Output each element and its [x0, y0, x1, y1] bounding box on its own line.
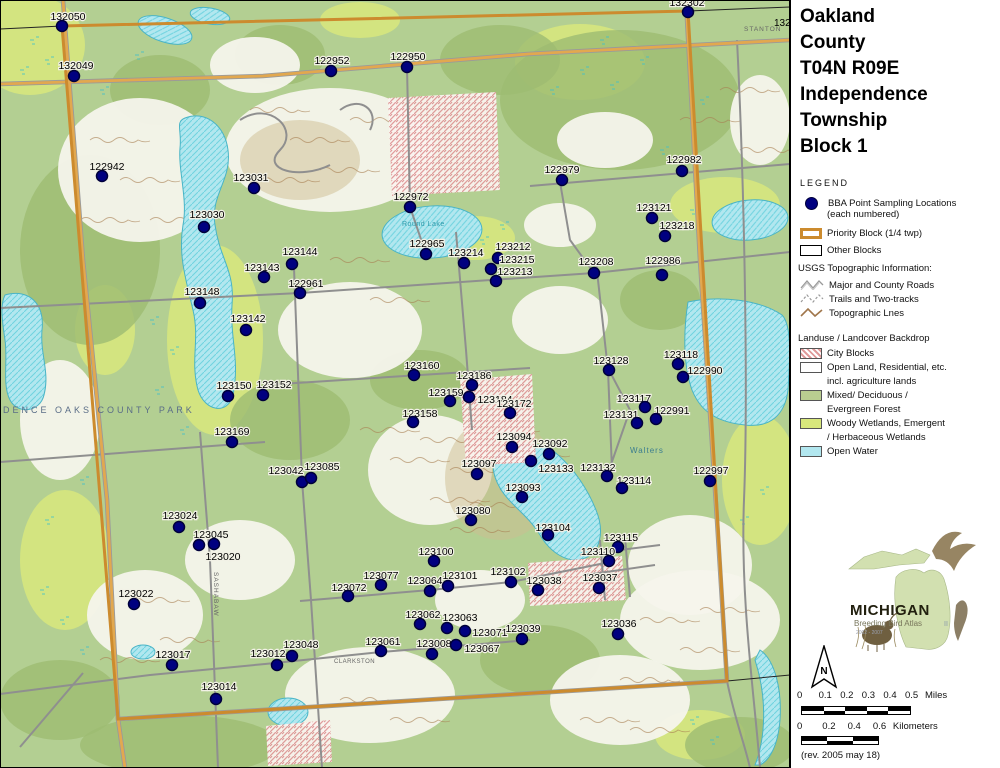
bba-point-123169	[227, 437, 238, 448]
bba-point-label: 123148	[184, 286, 219, 298]
priority-block-icon	[800, 228, 822, 239]
bba-point-122952	[326, 66, 337, 77]
bba-point-123064	[425, 586, 436, 597]
north-arrow-icon: N	[809, 645, 839, 691]
bba-point-label: 123024	[162, 510, 197, 522]
scalebar-tick: 0.5	[905, 690, 918, 701]
map-sheet: INDEPENDENCE OAKS COUNTY PARKWaltersRoun…	[0, 0, 1000, 768]
legend-item-trails: Trails and Two-tracks	[800, 292, 919, 307]
bba-point-122965	[421, 249, 432, 260]
scalebar-tick: 0.1	[819, 690, 832, 701]
bba-point-label: 123030	[189, 209, 224, 221]
svg-text:CLARKSTON: CLARKSTON	[334, 659, 375, 665]
bba-point-123213	[491, 276, 502, 287]
bba-point-123114	[617, 483, 628, 494]
bba-point-123067	[451, 640, 462, 651]
bba-point-123160	[409, 370, 420, 381]
bba-point-123039	[517, 634, 528, 645]
bba-point-123143	[259, 272, 270, 283]
legend-item-wetlands: Woody Wetlands, Emergent	[800, 418, 945, 429]
michigan-up-shape	[849, 549, 930, 569]
bba-point-122982	[677, 166, 688, 177]
bba-point-123038	[533, 585, 544, 596]
bba-point-122986	[657, 270, 668, 281]
bba-point-label: 123212	[495, 241, 530, 253]
scalebar-tick: 0.6	[873, 721, 886, 732]
map-area: INDEPENDENCE OAKS COUNTY PARKWaltersRoun…	[0, 0, 790, 768]
bba-point-123133	[526, 456, 537, 467]
bba-point-label: 123160	[404, 360, 439, 372]
scalebar-tick: 0.4	[883, 690, 896, 701]
bba-point-label: 123144	[282, 246, 317, 258]
legend-item-open-land: Open Land, Residential, etc.	[800, 362, 947, 373]
svg-text:Walters: Walters	[630, 446, 664, 455]
bba-point-123093	[517, 492, 528, 503]
scalebar-unit: Kilometers	[893, 721, 938, 732]
bba-point-132049	[69, 71, 80, 82]
bba-point-123085	[306, 473, 317, 484]
bba-point-123184	[464, 392, 475, 403]
bba-point-123071	[460, 626, 471, 637]
bba-point-label: 123172	[496, 398, 531, 410]
legend-item-open-land-line2: incl. agriculture lands	[827, 376, 916, 387]
bba-point-123048	[287, 651, 298, 662]
bba-point-123031	[249, 183, 260, 194]
bba-point-label: 123042	[268, 465, 303, 477]
scalebar-tick: 0	[797, 721, 802, 732]
legend-item-open-water: Open Water	[800, 446, 878, 457]
bba-point-123037	[594, 583, 605, 594]
svg-text:2002 - 2007: 2002 - 2007	[856, 630, 883, 636]
bba-point-icon	[805, 197, 818, 210]
bba-point-label: 122986	[645, 255, 680, 267]
bba-point-123062	[415, 619, 426, 630]
map-title: Oakland County T04N R09E Independence To…	[800, 4, 928, 160]
landuse-heading: Landuse / Landcover Backdrop	[798, 333, 930, 344]
scalebar-tick: 0.2	[822, 721, 835, 732]
bba-point-123218	[660, 231, 671, 242]
bba-point-123036	[613, 629, 624, 640]
bba-point-122997	[705, 476, 716, 487]
bba-point-123022	[129, 599, 140, 610]
bba-point-label: 122942	[89, 161, 124, 173]
bba-point-122991	[651, 414, 662, 425]
bba-point-123148	[195, 298, 206, 309]
bba-point-123214	[459, 258, 470, 269]
bba-point-label: 123064	[407, 575, 442, 587]
bba-point-label: 123012	[250, 648, 285, 660]
svg-text:SASHABAW: SASHABAW	[212, 572, 219, 617]
legend-item-bba-points-line2: (each numbered)	[827, 209, 899, 220]
title-line: Independence	[800, 82, 928, 108]
open-water-icon	[800, 446, 822, 457]
bba-point-label: 123071	[472, 627, 507, 639]
bba-point-label: 123133	[538, 463, 573, 475]
bba-point-123100	[429, 556, 440, 567]
bba-point-label: 123020	[205, 551, 240, 563]
bba-point-123097	[472, 469, 483, 480]
topo-map: INDEPENDENCE OAKS COUNTY PARKWaltersRoun…	[0, 0, 790, 768]
bba-point-label: 123048	[283, 639, 318, 651]
bba-point-label: 123150	[216, 380, 251, 392]
bba-point-123104	[543, 530, 554, 541]
scalebar	[801, 736, 879, 745]
bba-point-123215	[486, 264, 497, 275]
bba-point-122961	[295, 288, 306, 299]
bba-point-123128	[604, 365, 615, 376]
bba-point-label: 123085	[304, 461, 339, 473]
trails-zigzag-icon	[800, 292, 824, 307]
scalebar-tick: 0	[797, 690, 802, 701]
bba-point-123144	[287, 259, 298, 270]
bba-point-123186	[467, 380, 478, 391]
bba-point-123008	[427, 649, 438, 660]
bba-point-label: 123213	[497, 266, 532, 278]
bba-point-123142	[241, 325, 252, 336]
scalebar-tick: 0.4	[848, 721, 861, 732]
bba-point-123077	[376, 580, 387, 591]
bba-point-label: 122982	[666, 154, 701, 166]
bba-point-label: 123067	[464, 643, 499, 655]
bba-point-123012	[272, 660, 283, 671]
bba-point-123110	[604, 556, 615, 567]
bba-point-label: 123158	[402, 408, 437, 420]
bba-point-label: 123208	[578, 256, 613, 268]
bba-point-122979	[557, 175, 568, 186]
title-line: Oakland	[800, 4, 928, 30]
bba-point-123117	[640, 402, 651, 413]
bba-point-123158	[408, 417, 419, 428]
svg-text:N: N	[820, 666, 827, 677]
wetlands-icon	[800, 418, 822, 429]
city-blocks-icon	[800, 348, 822, 359]
bba-point-122972	[405, 202, 416, 213]
bba-point-123045	[194, 540, 205, 551]
topo-zigzag-icon	[800, 306, 824, 321]
mba-logo: MICHIGAN Breeding Bird Atlas 2002 - 2007…	[844, 527, 994, 659]
bba-point-123101	[443, 581, 454, 592]
bba-point-123102	[506, 577, 517, 588]
bba-point-123061	[376, 646, 387, 657]
open-land-icon	[800, 362, 822, 373]
hawk-icon	[932, 532, 976, 571]
bba-point-122950	[402, 62, 413, 73]
bba-point-label: 122990	[687, 365, 722, 377]
bba-point-123118	[673, 359, 684, 370]
bba-point-123092	[544, 449, 555, 460]
bba-point-label: 132050	[50, 11, 85, 23]
bba-point-label: 122961	[288, 278, 323, 290]
bba-point-label: 123038	[526, 575, 561, 587]
bba-point-123030	[199, 222, 210, 233]
bba-point-123132	[602, 471, 613, 482]
bba-point-123131	[632, 418, 643, 429]
bba-point-123072	[343, 591, 354, 602]
svg-text:II: II	[944, 621, 948, 628]
roads-zigzag-icon	[800, 278, 824, 293]
legend-heading: LEGEND	[800, 178, 849, 188]
other-blocks-icon	[800, 245, 822, 256]
legend-item-topo-lines: Topographic Lnes	[800, 306, 904, 321]
scalebar-tick: 0.3	[862, 690, 875, 701]
bba-point-132050	[57, 21, 68, 32]
bba-point-123172	[505, 408, 516, 419]
title-line: County	[800, 30, 928, 56]
bba-point-label: 123142	[230, 313, 265, 325]
usgs-heading: USGS Topographic Information:	[798, 263, 932, 274]
svg-text:INDEPENDENCE OAKS COUNTY PARK: INDEPENDENCE OAKS COUNTY PARK	[0, 405, 195, 415]
bba-point-123063	[442, 623, 453, 634]
svg-text:132: 132	[774, 18, 790, 29]
bba-point-123080	[466, 515, 477, 526]
bba-point-123159	[445, 396, 456, 407]
legend-item-priority-block: Priority Block (1/4 twp)	[800, 228, 922, 239]
svg-text:Round Lake: Round Lake	[402, 221, 445, 228]
bba-point-label: 123014	[201, 681, 236, 693]
legend-item-forest-line2: Evergreen Forest	[827, 404, 900, 415]
svg-text:Breeding Bird Atlas: Breeding Bird Atlas	[854, 619, 922, 628]
scalebar-unit: Miles	[925, 690, 947, 701]
title-line: Block 1	[800, 134, 928, 160]
bba-point-123094	[507, 442, 518, 453]
legend-item-major-roads: Major and County Roads	[800, 278, 934, 293]
bba-point-122990	[678, 372, 689, 383]
bba-point-label: 123215	[499, 254, 534, 266]
logo-name: MICHIGAN	[850, 602, 930, 619]
bba-point-122942	[97, 171, 108, 182]
title-line: T04N R09E	[800, 56, 928, 82]
legend-item-city-blocks: City Blocks	[800, 348, 874, 359]
bba-point-123017	[167, 660, 178, 671]
scalebar-tick: 0.2	[840, 690, 853, 701]
legend-item-wetlands-line2: / Herbaceous Wetlands	[827, 432, 926, 443]
perched-bird-icon	[954, 600, 968, 641]
bba-point-123208	[589, 268, 600, 279]
bba-point-123014	[211, 694, 222, 705]
title-line: Township	[800, 108, 928, 134]
bba-point-123024	[174, 522, 185, 533]
bba-point-123020	[209, 539, 220, 550]
legend-item-forest: Mixed/ Deciduous /	[800, 390, 908, 401]
bba-point-132302	[683, 7, 694, 18]
bba-point-123121	[647, 213, 658, 224]
scalebar	[801, 706, 911, 715]
legend-item-other-blocks: Other Blocks	[800, 245, 881, 256]
forest-icon	[800, 390, 822, 401]
legend-panel: Oakland County T04N R09E Independence To…	[790, 0, 1000, 768]
bba-point-123150	[223, 391, 234, 402]
bba-point-label: 123102	[490, 566, 525, 578]
bba-point-label: 123031	[233, 172, 268, 184]
revision-note: (rev. 2005 may 18)	[801, 750, 880, 761]
bba-point-123152	[258, 390, 269, 401]
